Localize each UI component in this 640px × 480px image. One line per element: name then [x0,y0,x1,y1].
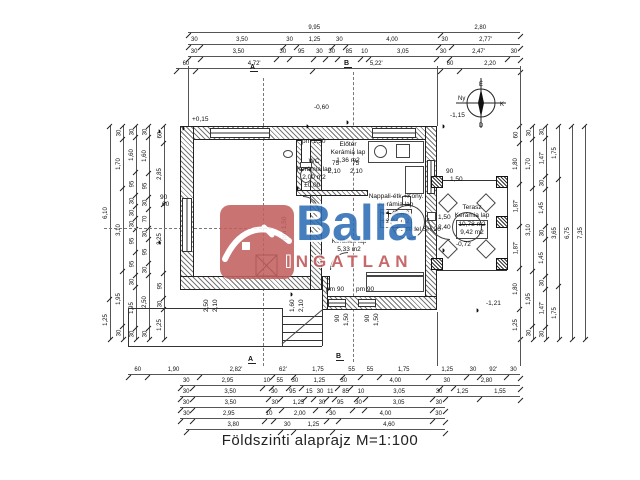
dimension-label: 1,25 [457,389,469,395]
dimension-segment: 3,10 [525,188,534,272]
benchmark-icon: ◑ [304,122,309,131]
dimension-label: 30 [336,37,343,43]
dimension-segment: 3,50 [200,48,277,57]
dimension-label: 1,55 [494,389,506,395]
dimension-label: 5,22' [370,61,383,67]
stair-step [282,316,322,317]
dimension-label: 3,80 [227,422,239,428]
inline-dim: 90 [446,168,453,176]
level-value: -0,60 [314,104,329,112]
dimension-segment: 92' [480,366,507,375]
dimension-label: 1,95 [526,293,532,305]
dimension-segment: 3,50 [192,388,268,397]
dimension-label: 1,70 [116,158,122,170]
dim-chain-right-2: 301,703,101,9530 [525,126,534,340]
dimension-label: 1,75 [312,367,324,373]
dim-chain-right-6: 7,35 [577,126,586,340]
dimension-label: 2,82' [230,367,243,373]
dimension-label: 1,75 [398,367,410,373]
room-area: 9,42 m2 [458,229,485,237]
dimension-segment: 4,00 [339,410,432,419]
watermark-logo: Balla INGATLAN [220,202,412,282]
dimension-label: 30 [272,400,279,406]
benchmark-icon: ◑ [474,306,479,315]
dimension-label: 30 [142,128,148,135]
dimension-label: 4,00 [389,378,401,384]
room-area-old: 10,78 m2 [458,221,485,229]
dimension-segment: 30 [283,36,296,45]
dimension-segment: 30 [437,48,449,57]
dimension-segment: 2,80 [453,377,520,386]
dimension-label: 30 [317,389,324,395]
dimension-segment: 60 [128,366,147,375]
inline-dim: 1,50 [450,176,463,184]
dimension-label: 95 [129,181,135,188]
dimension-label: 3,65 [552,227,558,239]
dimension-label: 30 [142,231,148,238]
dimension-label: 30 [116,129,122,136]
dimension-segment: 3,05 [365,388,433,397]
stair-side [322,308,323,346]
dimension-label: 85 [346,49,353,55]
dimension-label: 30 [355,400,362,406]
dimension-label: 4,60 [383,422,395,428]
stair-side [282,308,283,346]
dimension-label: 1,25 [309,37,321,43]
dimension-segment: 30 [466,366,479,375]
dimension-label: 15 [306,389,313,395]
inline-dim: 2,10 [298,299,306,312]
dimension-label: 1,25 [293,400,305,406]
dimension-label: 30 [510,367,517,373]
dim-chain-left-2: 301,703,101,9530 [115,126,124,340]
dimension-segment: 1,95 [525,272,534,327]
benchmark-icon: ◑ [294,184,299,193]
path-edge-left [128,308,129,346]
dimension-label: 1,25 [513,319,519,331]
dimension-segment: 11 [326,388,334,397]
dimension-label: 2,85 [157,168,163,180]
dimension-label: 30 [440,49,447,55]
dimension-segment: 1,25 [281,399,316,408]
dimension-segment: 30 [508,48,520,57]
dim-chain-bottom-5: 302,95102,00304,0030 [180,410,445,419]
dimension-label: 4,00 [386,37,398,43]
inline-dim: 1,50 [343,313,351,326]
dimension-label: 9,95 [308,25,320,31]
compass-north-label: É [479,81,483,88]
dimension-label: 30 [129,209,135,216]
compass-east-label: K [500,102,504,108]
dimension-segment: 1,25 [102,300,111,340]
dim-chain-top-1: 9,952,80 [188,24,520,33]
logo-sub-text: INGATLAN [286,252,413,272]
dimension-label: 30 [539,330,545,337]
dimension-segment: 30 [326,410,339,419]
dimension-segment: 30 [180,410,193,419]
dimension-segment: 30 [141,328,150,340]
dimension-label: 30 [539,180,545,187]
dimension-segment: 95 [156,274,165,298]
dimension-label: 55 [367,367,374,373]
dimension-label: 30 [319,400,326,406]
inline-dim: 90 [334,315,342,322]
dimension-label: 1,25 [157,319,163,331]
dimension-segment: 1,87' [512,184,521,226]
dimension-label: 4,00 [380,411,392,417]
dimension-label: 30 [539,280,545,287]
dimension-segment: 9,95 [188,24,441,33]
dimension-segment: 1,75 [379,366,428,375]
benchmark-icon: ◑ [440,122,445,131]
dimension-label: 30 [284,422,291,428]
dimension-label: 30 [129,221,135,228]
extension-line [520,66,521,126]
dimension-label: 30 [340,378,347,384]
dimension-segment: 3,65 [551,180,560,286]
compass-south-label: D [479,123,484,129]
dimension-label: 2,77' [479,37,492,43]
inline-dim: pm 90 [356,286,374,294]
dimension-segment: 1,25 [296,36,333,45]
dimension-segment: 30 [180,377,193,386]
dimension-segment: 1,25 [301,377,337,386]
dimension-label: 1,90 [168,367,180,373]
dimension-label: 30 [441,37,448,43]
dimension-segment: 3,50 [201,36,284,45]
window-bottom-2 [358,299,376,307]
level-value: +0,15 [192,116,208,124]
dim-chain-bottom-1: 601,902,82'62'1,7555551,751,253092'30 [128,366,520,375]
dimension-label: 1,47' [539,151,545,164]
dimension-label: 1,95 [116,293,122,305]
dimension-segment: 30 [432,410,445,419]
dimension-label: 95 [289,389,296,395]
dim-chain-bottom-4: 303,50301,253095303,0530 [180,399,445,408]
dimension-label: 2,95 [223,411,235,417]
dimension-segment: 1,90 [147,366,199,375]
dimension-label: 1,80 [513,158,519,170]
benchmark-icon: ◑ [156,127,161,136]
dimension-label: 95 [142,249,148,256]
dimension-label: 30 [539,129,545,136]
dimension-segment: 3,05 [369,48,437,57]
dimension-label: 2,80 [481,378,493,384]
dim-chain-right-4: 1,753,651,75 [551,126,560,340]
inline-dim: 60 [162,201,169,209]
dimension-label: 10 [358,389,365,395]
dim-chain-bottom-3: 303,50309515301185103,05301,251,55 [180,388,520,397]
terrace-column [431,258,443,270]
extension-line [188,66,189,126]
dimension-label: 1,75 [552,307,558,319]
stair-step [282,332,322,333]
dimension-label: 1,45 [539,202,545,214]
compass-west-label: Ny [458,96,465,102]
dimension-segment: 85 [338,48,360,57]
dimension-label: 30 [142,266,148,273]
dimension-label: 62' [279,367,287,373]
dimension-segment: 1,70 [115,140,124,189]
dim-chain-bottom-6: 3,80301,254,60 [186,421,445,430]
dimension-segment: 10 [265,410,274,419]
dimension-label: 95 [129,261,135,268]
dimension-label: 30 [328,49,335,55]
dimension-segment: 95 [128,253,137,276]
dimension-segment: 55 [271,377,289,386]
dimension-label: 6,10 [103,207,109,219]
room-area-box: 10,78 m2 9,42 m2 [456,220,487,238]
inline-dim: 2,10 [212,299,220,312]
window-top-1 [210,128,270,138]
dimension-segment: 1,70 [525,140,534,189]
dimension-label: 30 [435,411,442,417]
dimension-label: 2,47' [472,49,485,55]
dimension-segment: 60 [440,60,460,69]
dimension-segment: 95 [280,388,304,397]
inline-dim: 2,10 [328,168,341,176]
dimension-label: 92' [489,367,497,373]
dimension-label: 30 [129,331,135,338]
dimension-label: 85 [342,389,349,395]
dimension-segment: 2,00 [273,410,326,419]
dimension-segment: 55 [361,366,379,375]
dimension-label: 30 [183,378,190,384]
dimension-segment: 30 [441,377,454,386]
dimension-segment: 95 [141,240,150,264]
dimension-segment: 1,45 [538,189,547,227]
dimension-label: 3,05 [393,389,405,395]
dim-chain-right-3: 301,47'301,45301,45301,47'30 [538,126,547,340]
section-marker-a-top: A [250,64,258,72]
dimension-label: 1,75 [552,147,558,159]
terrace-column [496,258,508,270]
dimension-segment: 1,75 [551,126,560,180]
dimension-label: 30 [157,301,163,308]
dimension-label: 30 [129,128,135,135]
dimension-label: 30 [511,49,518,55]
benchmark-icon: ◑ [344,118,349,127]
room-name: Előtér [324,141,372,149]
dimension-label: 3,50 [233,49,245,55]
dimension-segment: 95 [141,174,150,198]
dimension-label: 2,50 [142,296,148,308]
dimension-label: 2,00 [294,411,306,417]
inline-dim: 1,50 [373,313,381,326]
dimension-segment: 5,22' [312,60,440,69]
dimension-segment: 2,95 [193,410,265,419]
dimension-label: 1,60 [129,149,135,161]
dim-chain-bottom-2: 302,951055301,25304,00302,80 [180,377,520,386]
dimension-segment: 4,00 [346,36,439,45]
path-edge-bottom [128,346,322,347]
dimension-label: 3,50 [224,389,236,395]
dimension-segment: 1,75 [293,366,342,375]
dimension-label: 1,70 [526,158,532,170]
floor-plan-drawing: 9,952,80 303,50301,25304,00302,77' 303,5… [0,0,640,480]
terrace-column [431,176,443,188]
kitchen-cabinet [405,166,424,194]
dim-chain-right-5: 6,75 [564,126,573,340]
dimension-label: 6,75 [565,227,571,239]
dimension-segment: 30 [188,48,200,57]
dimension-segment: 2,82' [200,366,273,375]
dimension-label: 3,50 [236,37,248,43]
inline-dim: 75 [352,160,359,168]
dimension-label: 30 [183,411,190,417]
logo-brand-text: Balla [296,194,416,252]
dimension-segment: 30 [277,48,289,57]
dimension-label: 3,05 [393,400,405,406]
dimension-label: 30 [316,49,323,55]
dimension-label: 30 [444,378,451,384]
dimension-segment: 1,55 [480,388,520,397]
dimension-segment: 30 [269,399,281,408]
dimension-label: 30 [191,49,198,55]
dimension-label: 60 [513,131,519,138]
dimension-segment: 1,25 [445,388,480,397]
dimension-segment: 85 [334,388,356,397]
dimension-segment: 30 [438,36,451,45]
dimension-segment: 1,25 [156,310,165,340]
dimension-label: 30 [271,389,278,395]
dimension-segment: 1,25 [294,421,333,430]
dimension-label: 55 [348,367,355,373]
dimension-label: 11 [327,389,333,395]
dimension-label: 60 [134,367,141,373]
dimension-segment: 95 [328,399,352,408]
dimension-segment: 30 [289,377,302,386]
inline-dim: 2,10 [350,168,363,176]
benchmark-icon: ◑ [440,246,445,255]
dimension-label: 1,87' [513,199,519,212]
dimension-label: 30 [329,411,336,417]
dimension-segment: 30 [180,399,192,408]
dimension-segment: 30 [188,36,201,45]
dimension-label: 1,25 [441,367,453,373]
dimension-label: 3,50 [225,400,237,406]
inline-dim: 2,40 [438,224,451,232]
section-marker-b-bottom: B [336,353,344,361]
dimension-segment: 6,75 [564,126,573,340]
window-left [182,198,192,252]
dimension-label: 1,25 [308,422,320,428]
dimension-segment: 30 [313,48,325,57]
stair-step [282,324,322,325]
dimension-segment: 30 [433,399,445,408]
dimension-segment: 4,60 [333,421,445,430]
dimension-label: 30 [142,200,148,207]
dimension-segment: 30 [268,388,280,397]
level-value: -1,21 [486,300,501,308]
logo-house-icon [220,205,294,279]
dimension-label: 30 [116,330,122,337]
dimension-label: 30 [129,278,135,285]
dimension-label: 3,05 [397,49,409,55]
dimension-segment: 1,75 [551,286,560,340]
dimension-label: 95 [129,238,135,245]
dimension-segment: 30 [281,421,294,430]
dimension-segment: 30 [128,329,137,340]
dimension-label: 30 [183,400,190,406]
inline-dim: 90 [364,315,372,322]
dimension-segment: 3,80 [186,421,281,430]
dimension-segment: 6,10 [102,126,111,300]
room-material: Kerámia lap [324,149,372,157]
dimension-segment: 30 [525,327,534,341]
dimension-label: 1,60 [142,150,148,162]
dimension-segment: 95 [128,172,137,195]
inline-dim: pm 1,50 [302,138,326,146]
dimension-segment: 30 [507,366,520,375]
level-value: -1,15 [450,112,465,120]
dimension-label: 30 [436,400,443,406]
compass-needle [478,89,484,117]
extension-line [437,66,438,126]
inline-dim: 1,60 [289,299,297,312]
dimension-label: 30 [142,331,148,338]
dimension-segment: 62' [272,366,293,375]
dimension-segment: 4,00 [350,377,440,386]
dimension-segment: 15 [305,388,314,397]
dimension-segment: 30 [352,399,364,408]
dimension-segment: 60 [176,60,196,69]
dimension-label: 1,87' [513,241,519,254]
dimension-label: 1,80 [513,284,519,296]
section-marker-b-top: B [344,60,352,68]
dimension-label: 30 [292,378,299,384]
dimension-segment: 1,60 [128,137,137,172]
dimension-label: 30 [526,330,532,337]
dimension-segment: 2,95 [193,377,263,386]
dimension-label: 30 [526,129,532,136]
dimension-segment: 1,47' [538,289,547,327]
extension-line [520,282,521,366]
benchmark-icon: ◑ [156,238,161,247]
dimension-label: 1,45 [539,252,545,264]
dimension-label: 10 [263,378,270,384]
dimension-segment: 10 [262,377,271,386]
dimension-label: 95 [298,49,305,55]
kitchen-sink [396,144,410,158]
north-compass: É K D Ny [456,78,506,129]
extension-line [437,312,438,366]
dimension-label: 2,80 [474,25,486,31]
dimension-segment: 30 [333,36,346,45]
terrace-edge-bottom [437,270,507,271]
dimension-segment: 3,05 [365,399,433,408]
dimension-label: 30 [470,367,477,373]
dimension-segment: 10 [357,388,366,397]
dimension-label: 30 [183,389,190,395]
inline-dim: pm 90 [326,286,344,294]
dimension-label: 3,10 [526,224,532,236]
dimension-label: 1,47' [539,302,545,315]
dimension-segment: 2,20 [460,60,520,69]
dimension-segment: 1,87' [512,227,521,269]
dimension-label: 30 [129,198,135,205]
dim-chain-left-1: 6,101,25 [102,126,111,340]
dimension-label: 10 [361,49,368,55]
dimension-label: 95 [142,182,148,189]
drawing-title: Földszinti alaprajz M=1:100 [150,432,490,449]
section-marker-a-bottom: A [248,356,256,364]
dimension-segment: 3,50 [192,399,269,408]
dimension-segment: 95 [128,230,137,253]
window-bottom-1 [328,299,346,307]
dim-chain-top-3: 303,503095303085103,05302,47'30 [188,48,520,57]
dimension-label: 30 [436,389,443,395]
